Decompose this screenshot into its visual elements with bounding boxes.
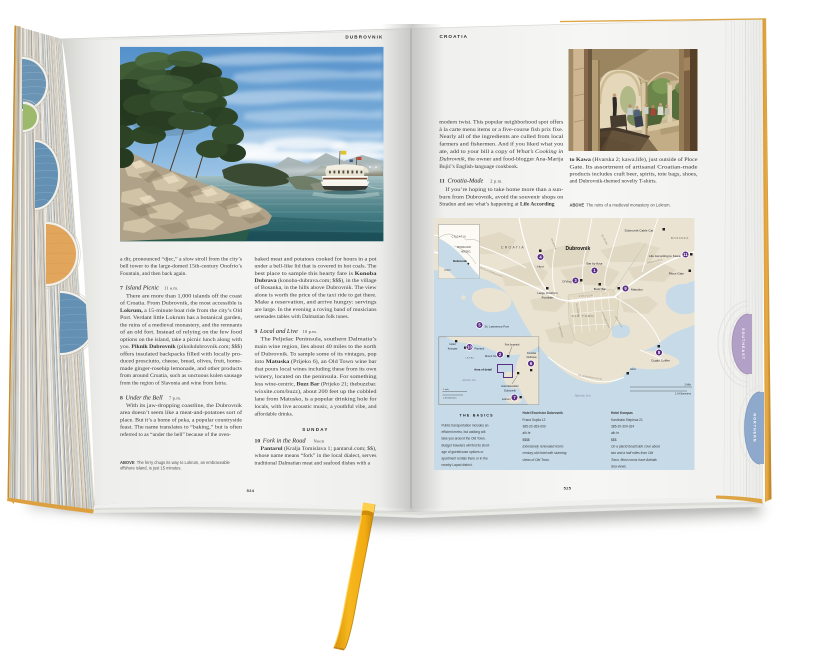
svg-text:into Matuska (Prijeko 6), an O: into Matuska (Prijeko 6), an Old Town wi… [255,358,377,365]
svg-text:views of Old Town.: views of Old Town. [523,458,550,462]
svg-text:à la carte menu items or a fiv: à la carte menu items or a five-course f… [439,126,563,133]
svg-text:less wine-centric, Buzz Bar (P: less wine-centric, Buzz Bar (Prijeko 21;… [255,381,377,388]
svg-text:apartment rentals there or in: apartment rentals there or in the [442,457,488,461]
svg-text:baked meat and potatoes cooked: baked meat and potatoes cooked for hours… [255,255,378,262]
svg-text:7: 7 [120,286,123,292]
svg-text:Island Picnic: Island Picnic [125,285,160,292]
svg-text:8: 8 [120,395,123,401]
svg-text:two and a half miles from Old: two and a half miles from Old [611,451,653,455]
svg-text:Fort Imperial: Fort Imperial [505,343,520,347]
svg-text:11: 11 [683,252,688,257]
svg-text:Bar by Azur: Bar by Azur [587,262,603,266]
svg-text:Buzz Bar: Buzz Bar [594,287,607,291]
svg-text:If you’re hoping to take home: If you’re hoping to take home more than … [445,186,563,193]
svg-text:OLD TOWN: OLD TOWN [572,314,595,318]
svg-text:modern twist. This popular nei: modern twist. This popular neighborhood … [439,118,563,125]
svg-text:Gate. Its assortment of artisa: Gate. Its assortment of artisanal Croati… [570,163,699,170]
svg-text:place. But it’s a home of peka: place. But it’s a home of peka, a popula… [120,416,243,423]
svg-text:main wine region, lies about 4: main wine region, lies about 40 miles to… [255,344,377,350]
svg-text:age of guesthouse options or: age of guesthouse options or [442,450,485,454]
svg-text:Dubrava: Dubrava [527,355,537,359]
svg-text:Extensively renovated iconic: Extensively renovated iconic [523,444,564,448]
svg-text:Noon: Noon [314,439,325,444]
svg-text:BOSANKA: BOSANKA [671,236,689,240]
svg-text:Stradun and see what’s happeni: Stradun and see what’s happening at Life… [439,202,555,208]
svg-text:that pours local wines includi: that pours local wines including these f… [255,366,377,373]
svg-text:10: 10 [255,439,261,445]
svg-text:Frana Supila 12: Frana Supila 12 [523,418,546,422]
svg-text:Sea views.: Sea views. [611,464,627,468]
svg-text:of Croatia. From Dubrovnik, th: of Croatia. From Dubrovnik, the most acc… [120,300,242,307]
svg-text:under a bell-like lid that is: under a bell-like lid that is covered in… [255,264,378,270]
svg-text:locals, with live acoustic mus: locals, with live acoustic music, a yout… [255,403,377,410]
svg-text:Konoba: Konoba [527,351,537,355]
svg-text:Kardinala Stepinca 21: Kardinala Stepinca 21 [611,418,643,422]
svg-text:Fountain, and then back again.: Fountain, and then back again. [120,271,187,277]
svg-text:SOUTHEAST: SOUTHEAST [741,328,745,360]
svg-text:1.6 Kilometers: 1.6 Kilometers [675,393,692,396]
svg-text:best place to sample this hear: best place to sample this hearty fare is… [255,270,377,277]
svg-text:wixsite.com/buzz), about 200 f: wixsite.com/buzz), about 200 feet up the… [255,388,377,395]
svg-text:9: 9 [255,329,258,335]
svg-text:take you around the Old Town.: take you around the Old Town. [442,437,486,441]
svg-text:century-old hotel with stunnin: century-old hotel with stunning [523,451,567,455]
svg-text:ABOVE The ruins of a medieval: ABOVE The ruins of a medieval monastery … [570,203,671,208]
svg-text:duced prosciutto, cheese, brea: duced prosciutto, cheese, bread, olives,… [120,358,242,365]
svg-text:Dubrovnik: Dubrovnik [566,246,591,252]
svg-text:Adriatic Sea: Adriatic Sea [461,379,476,382]
svg-text:CROATIA: CROATIA [440,34,469,39]
svg-text:Azur: Azur [630,367,636,371]
svg-text:525: 525 [564,486,572,491]
svg-text:burn from Dubrovnik, avoid the: burn from Dubrovnik, avoid the souvenir … [439,193,563,200]
svg-text:feast. The name translates to: feast. The name translates to “baking,” … [120,424,242,431]
svg-text:nearby Lapad district.: nearby Lapad district. [442,463,473,467]
svg-text:efficient metro, but walking w: efficient metro, but walking will [442,430,486,434]
svg-text:Area of detail: Area of detail [474,368,492,372]
svg-text:whose name means “fork” in the: whose name means “fork” in the local dia… [255,452,377,459]
svg-text:from the region of Slavonia an: from the region of Slavonia and wine fro… [120,379,227,386]
svg-text:Adriatic Sea: Adriatic Sea [574,394,591,398]
svg-text:of Bosanka, in the hills above: of Bosanka, in the hills above Dubrovnik… [255,284,377,291]
svg-text:1 Mile: 1 Mile [684,383,691,386]
svg-text:you. Piknik Dubrovnik (piknikd: you. Piknik Dubrovnik (piknikdubrovnik.c… [120,343,242,350]
svg-text:Mount Srd: Mount Srd [485,354,498,358]
svg-text:SUNDAY: SUNDAY [302,427,328,432]
svg-text:Large Onofrio’s: Large Onofrio’s [537,291,558,295]
svg-text:Under the Bell: Under the Bell [126,394,163,401]
svg-text:alh.hr: alh.hr [523,431,532,435]
svg-text:Hotel Excelsior Dubrovnik: Hotel Excelsior Dubrovnik [523,411,564,415]
svg-text:the ruins of a medieval monast: the ruins of a medieval monastery, and t… [120,321,242,328]
svg-text:referred to as “under the bell: referred to as “under the bell” because … [120,431,231,438]
svg-text:Pantarul (Kralja Tomislava 1;: Pantarul (Kralja Tomislava 1; pantarul.c… [261,445,378,452]
svg-text:Town. Most rooms have Adriatic: Town. Most rooms have Adriatic [611,458,657,462]
svg-text:are large. In the evening a ro: are large. In the evening a roving band … [255,306,377,313]
svg-text:Hotel Excelsior: Hotel Excelsior [501,384,518,388]
svg-text:$$$: $$$ [611,438,617,442]
svg-text:2 p.m.: 2 p.m. [490,178,502,183]
svg-text:DUBROVNIK: DUBROVNIK [345,35,383,40]
svg-text:There are more than 1,000 isla: There are more than 1,000 islands off th… [126,292,243,299]
svg-text:Local and Live: Local and Live [259,328,298,335]
svg-text:Dubrovnik, the owner and food-: Dubrovnik, the owner and food-blogger An… [438,156,564,163]
svg-text:offers insulated backpacks fil: offers insulated backpacks filled with l… [120,350,242,357]
svg-text:affordable drinks.: affordable drinks. [255,411,294,418]
svg-text:of an old fort. Instead of rel: of an old fort. Instead of relying on th… [120,329,242,336]
svg-text:CROATIA: CROATIA [501,246,525,250]
svg-text:$$$$: $$$$ [523,438,530,442]
svg-text:from around Croatia, such as u: from around Croatia, such as unctuous ku… [120,372,243,379]
svg-text:traditional Dalmatian meat and: traditional Dalmatian meat and seafood d… [255,459,371,466]
svg-text:ABOVE The ferry chugs its way: ABOVE The ferry chugs its way to Lokrum,… [120,460,231,465]
svg-text:Dubrovnik Cable Car: Dubrovnik Cable Car [625,229,654,233]
svg-text:Matusko: Matusko [631,288,643,292]
svg-text:With its jaw-dropping coastlin: With its jaw-dropping coastline, the Dub… [126,403,242,409]
svg-text:a dir, pronounced “djec,” a sl: a dir, pronounced “djec,” a slow stroll … [120,255,242,262]
svg-text:to Kawa (Hvarska 2; kawa.life): to Kawa (Hvarska 2; kawa.life), just out… [570,156,699,163]
svg-text:area doesn’t seem like a meat-: area doesn’t seem like a meat-and-potato… [120,409,242,416]
svg-text:D’Vino: D’Vino [562,280,571,284]
svg-text:10 p.m.: 10 p.m. [303,329,318,334]
svg-text:385-20-300-324: 385-20-300-324 [611,425,634,429]
svg-text:Dubrovnik: Dubrovnik [504,388,516,392]
svg-text:Host: Host [537,265,544,269]
svg-text:385-20-353-000: 385-20-353-000 [523,425,546,429]
svg-text:Ploce Gate: Ploce Gate [669,272,685,276]
svg-text:farmers and fishermen. And if: farmers and fishermen. And if you liked … [439,141,563,148]
svg-text:1 mile: 1 mile [443,389,450,391]
svg-text:Port. Verdant little Lokrum ha: Port. Verdant little Lokrum has a botani… [120,315,243,321]
svg-text:Public transportation includes: Public transportation includes an [442,423,489,427]
svg-text:Budget travelers will find its: Budget travelers will find its short- [442,443,491,447]
svg-text:ate, add to your bill a copy o: ate, add to your bill a copy of What’s C… [439,148,563,155]
svg-text:bell tower to the large-domed: bell tower to the large-domed 15th-centu… [120,263,242,270]
svg-text:On a placid beachside cove abo: On a placid beachside cove about [611,444,661,448]
svg-text:Fountain: Fountain [542,295,554,299]
svg-text:Bujić’s English-language cookb: Bujić’s English-language cookbook. [439,164,518,170]
svg-text:Nearly all of the ingredients: Nearly all of the ingredients are culled… [439,133,564,140]
svg-text:7 p.m.: 7 p.m. [169,395,181,400]
svg-text:11: 11 [439,178,445,184]
svg-text:Hotel: Hotel [449,342,455,346]
svg-text:products includes craft beer,: products includes craft beer, spirits, t… [570,171,699,178]
svg-text:NORTHERN: NORTHERN [753,413,757,442]
svg-text:Dubrava (konoba-dubrava.com; $: Dubrava (konoba-dubrava.com; $$$), in th… [255,277,378,284]
svg-text:Pantarul: Pantarul [475,347,485,351]
svg-text:offshore island, is just 15 mi: offshore island, is just 15 minutes. [120,466,182,471]
svg-text:524: 524 [247,488,255,493]
svg-text:Lokrum, a 15-minute boat ride: Lokrum, a 15-minute boat ride from the c… [120,307,242,314]
svg-text:options on the island, take a: options on the island, take a picnic lun… [120,337,242,343]
svg-text:HERZEG.: HERZEG. [461,252,472,254]
svg-text:alone is worth the price of th: alone is worth the price of the taxi rid… [255,291,377,298]
svg-text:Make a reservation, and arrive: Make a reservation, and arrive hungry: s… [255,300,377,306]
svg-text:and Dubrovnik-themed novelty T: and Dubrovnik-themed novelty T-shirts. [570,179,657,185]
svg-text:11 a.m.: 11 a.m. [164,286,178,291]
svg-text:Fork in the Road: Fork in the Road [262,438,307,445]
svg-text:of Dubrovnik. To sample some o: of Dubrovnik. To sample some of its vint… [255,351,377,358]
svg-text:serenades tables with Dalmatia: serenades tables with Dalmatian folk tun… [255,313,350,320]
svg-text:Croatia-Made: Croatia-Made [448,177,484,184]
svg-text:winery, located on the peninsu: winery, located on the peninsula. For so… [255,374,377,380]
svg-text:Hotel Kompas: Hotel Kompas [611,411,633,415]
svg-text:lane from Matusko, is a popula: lane from Matusko, is a popular drinking… [255,396,377,403]
svg-text:The Pelješac Peninsula, southe: The Pelješac Peninsula, southern Dalmati… [261,337,377,343]
svg-text:CROATIA: CROATIA [452,236,467,239]
svg-text:St. Lawrence Fort: St. Lawrence Fort [485,325,510,329]
svg-text:Cogito Coffee: Cogito Coffee [651,359,670,363]
svg-text:10: 10 [467,345,472,350]
svg-text:Lokrum: Lokrum [502,397,511,401]
svg-text:Life According to Kawa: Life According to Kawa [649,254,681,258]
svg-text:alh.hr: alh.hr [611,431,620,435]
svg-text:made ginger-rosehip lemonade,: made ginger-rosehip lemonade, and other … [120,366,242,372]
svg-text:Kompas: Kompas [448,346,458,350]
svg-text:Dubrovnik: Dubrovnik [453,259,467,263]
svg-text:THE BASICS: THE BASICS [460,414,494,418]
svg-text:ITALY: ITALY [445,269,452,272]
